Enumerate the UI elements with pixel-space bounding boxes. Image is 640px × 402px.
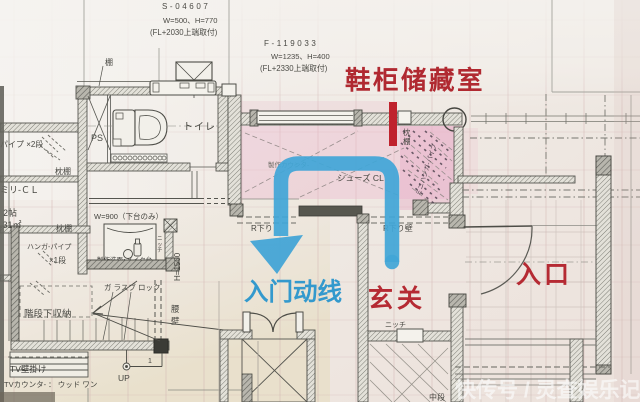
svg-text:入口: 入口: [516, 261, 572, 289]
svg-text:快传号 / 灵查娱乐记: 快传号 / 灵查娱乐记: [455, 378, 640, 402]
svg-text:枕: 枕: [403, 127, 411, 137]
svg-text:鞋柜储藏室: 鞋柜储藏室: [345, 66, 485, 95]
svg-text:枕棚: 枕棚: [56, 223, 72, 233]
svg-text:2帖: 2帖: [3, 207, 17, 218]
svg-text:(FL+2030上端取付): (FL+2030上端取付): [150, 27, 218, 37]
svg-text:F-119033: F-119033: [264, 39, 318, 48]
svg-text:TV壁掛け: TV壁掛け: [10, 364, 46, 374]
svg-text:TVカウンタ- ： ウッド ワン: TVカウンタ- ： ウッド ワン: [4, 380, 97, 389]
svg-text:玄关: 玄关: [368, 284, 426, 313]
svg-text:パイプ ×2段: パイプ ×2段: [0, 139, 43, 149]
svg-text:×1段: ×1段: [49, 255, 66, 265]
svg-text:ガ ラスブ ロック: ガ ラスブ ロック: [104, 282, 161, 292]
svg-text:1: 1: [148, 358, 152, 365]
svg-text:棚: 棚: [105, 57, 113, 67]
svg-text:UP: UP: [118, 373, 130, 383]
svg-text:R下り: R下り: [251, 224, 273, 233]
svg-text:腰: 腰: [171, 304, 180, 314]
svg-text:H=1500: H=1500: [173, 252, 182, 281]
svg-text:ハンガ-パイプ: ハンガ-パイプ: [27, 242, 71, 251]
svg-text:入门动线: 入门动线: [244, 277, 342, 306]
svg-text:PS: PS: [91, 133, 103, 143]
svg-text:棚: 棚: [403, 136, 411, 146]
svg-text:トイレ: トイレ: [183, 122, 216, 133]
svg-text:W=900（下台のみ）: W=900（下台のみ）: [94, 211, 163, 221]
svg-text:W=500、H=770: W=500、H=770: [163, 16, 217, 25]
svg-text:階段下収納: 階段下収納: [24, 308, 72, 320]
svg-text:ニッチ: ニッチ: [385, 321, 406, 329]
svg-text:枕棚: 枕棚: [55, 166, 71, 176]
svg-text:(FL+2330上端取付): (FL+2330上端取付): [260, 63, 328, 73]
svg-text:W=1235、H=400: W=1235、H=400: [271, 52, 330, 61]
svg-text:ニ: ニ: [157, 235, 163, 242]
svg-text:中段: 中段: [429, 392, 445, 402]
svg-text:シューズ CL: シューズ CL: [337, 173, 384, 183]
svg-text:チ: チ: [157, 247, 163, 254]
svg-text:S-04607: S-04607: [162, 2, 210, 11]
svg-text:ミリ-ＣＬ: ミリ-ＣＬ: [0, 185, 39, 195]
